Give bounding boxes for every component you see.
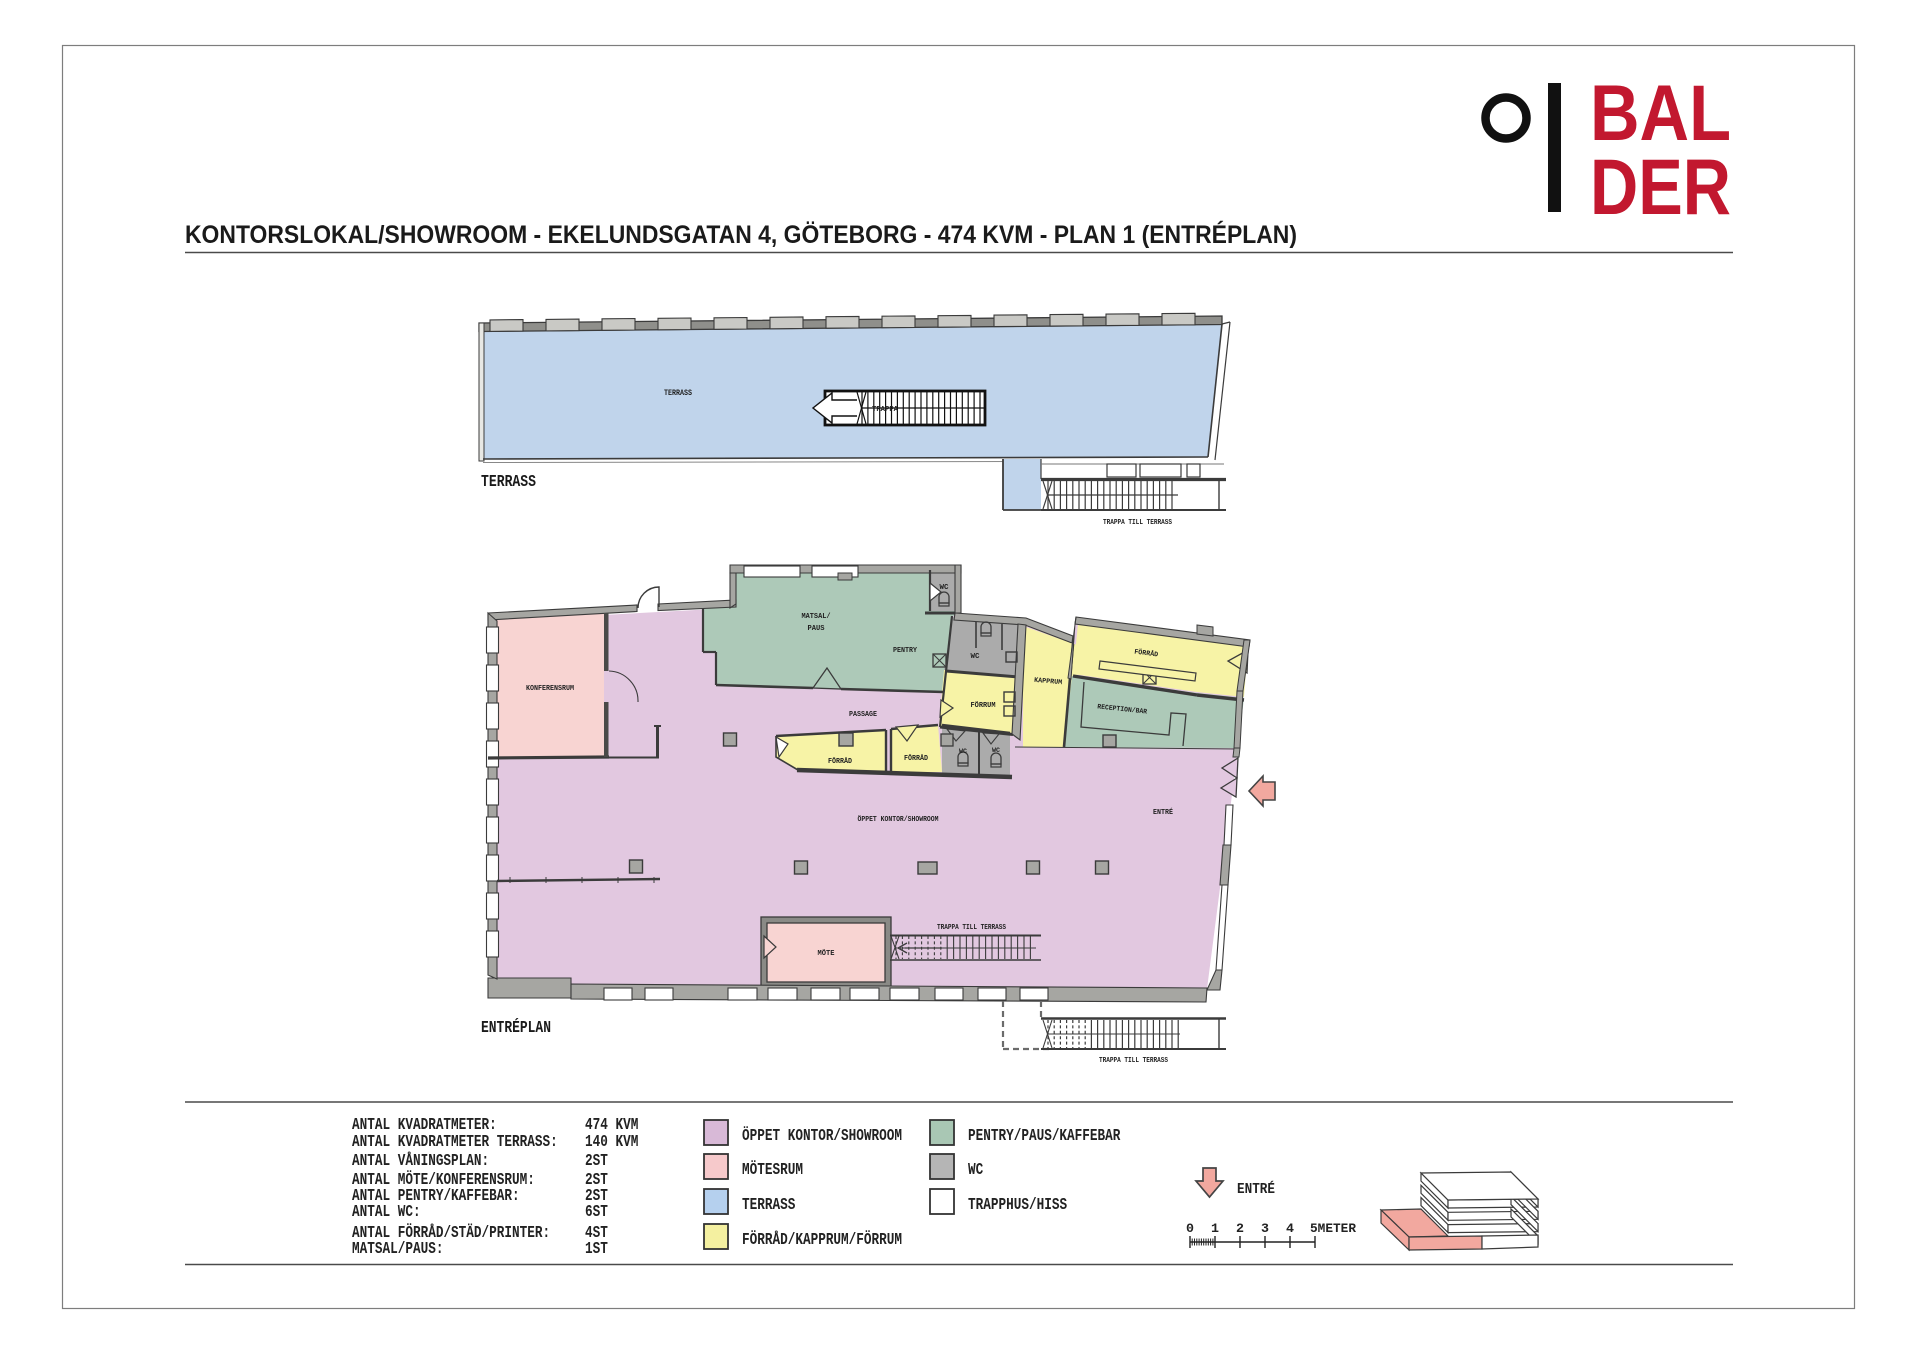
svg-text:FÖRRÅD: FÖRRÅD xyxy=(828,757,852,766)
svg-text:MATSAL/PAUS:: MATSAL/PAUS: xyxy=(352,1240,443,1259)
svg-text:ENTRÉPLAN: ENTRÉPLAN xyxy=(481,1018,551,1038)
svg-text:ANTAL KVADRATMETER TERRASS:: ANTAL KVADRATMETER TERRASS: xyxy=(352,1133,558,1152)
svg-text:WC: WC xyxy=(968,1161,983,1180)
svg-text:KONFERENSRUM: KONFERENSRUM xyxy=(526,685,574,693)
svg-text:ENTRÉ: ENTRÉ xyxy=(1237,1180,1275,1198)
svg-text:WC: WC xyxy=(959,748,967,755)
svg-text:140 KVM: 140 KVM xyxy=(585,1133,638,1152)
svg-text:KONTORSLOKAL/SHOWROOM - EKELUN: KONTORSLOKAL/SHOWROOM - EKELUNDSGATAN 4,… xyxy=(185,220,1297,249)
svg-text:0: 0 xyxy=(1186,1221,1194,1236)
svg-text:TERRASS: TERRASS xyxy=(481,473,536,492)
svg-text:PASSAGE: PASSAGE xyxy=(849,711,877,719)
svg-text:WC: WC xyxy=(971,653,980,661)
svg-text:6ST: 6ST xyxy=(585,1203,608,1222)
svg-text:ENTRÉ: ENTRÉ xyxy=(1153,808,1173,817)
svg-text:TERRASS: TERRASS xyxy=(664,389,692,398)
svg-text:WC: WC xyxy=(940,584,949,592)
svg-text:WC: WC xyxy=(992,747,1000,754)
svg-text:ÖPPET KONTOR/SHOWROOM: ÖPPET KONTOR/SHOWROOM xyxy=(858,815,939,824)
svg-text:4: 4 xyxy=(1286,1221,1294,1236)
svg-text:PENTRY: PENTRY xyxy=(893,647,918,655)
svg-text:1: 1 xyxy=(1211,1221,1219,1236)
svg-text:ANTAL WC:: ANTAL WC: xyxy=(352,1203,421,1222)
svg-text:5METER: 5METER xyxy=(1310,1221,1356,1236)
svg-text:ÖPPET KONTOR/SHOWROOM: ÖPPET KONTOR/SHOWROOM xyxy=(742,1126,902,1146)
svg-text:MATSAL/: MATSAL/ xyxy=(802,613,831,621)
svg-text:TRAPPA: TRAPPA xyxy=(872,406,899,414)
svg-text:PAUS: PAUS xyxy=(808,625,825,633)
svg-text:FÖRRÅD/KAPPRUM/FÖRRUM: FÖRRÅD/KAPPRUM/FÖRRUM xyxy=(742,1230,902,1250)
svg-text:TRAPPHUS/HISS: TRAPPHUS/HISS xyxy=(968,1196,1067,1215)
svg-text:PENTRY/PAUS/KAFFEBAR: PENTRY/PAUS/KAFFEBAR xyxy=(968,1127,1121,1146)
svg-text:TRAPPA TILL TERRASS: TRAPPA TILL TERRASS xyxy=(1103,519,1172,527)
svg-text:FÖRRUM: FÖRRUM xyxy=(971,701,996,710)
svg-text:ANTAL VÅNINGSPLAN:: ANTAL VÅNINGSPLAN: xyxy=(352,1151,489,1171)
svg-text:2ST: 2ST xyxy=(585,1152,608,1171)
svg-text:MÖTE: MÖTE xyxy=(818,949,835,958)
svg-text:TRAPPA TILL TERRASS: TRAPPA TILL TERRASS xyxy=(1099,1057,1168,1065)
svg-text:MÖTESRUM: MÖTESRUM xyxy=(742,1160,803,1180)
svg-text:3: 3 xyxy=(1261,1221,1269,1236)
svg-text:TERRASS: TERRASS xyxy=(742,1196,795,1215)
svg-text:FÖRRÅD: FÖRRÅD xyxy=(904,754,928,763)
svg-text:DER: DER xyxy=(1590,142,1731,231)
svg-text:TRAPPA TILL TERRASS: TRAPPA TILL TERRASS xyxy=(937,924,1006,932)
svg-text:2: 2 xyxy=(1236,1221,1244,1236)
svg-text:1ST: 1ST xyxy=(585,1240,608,1259)
